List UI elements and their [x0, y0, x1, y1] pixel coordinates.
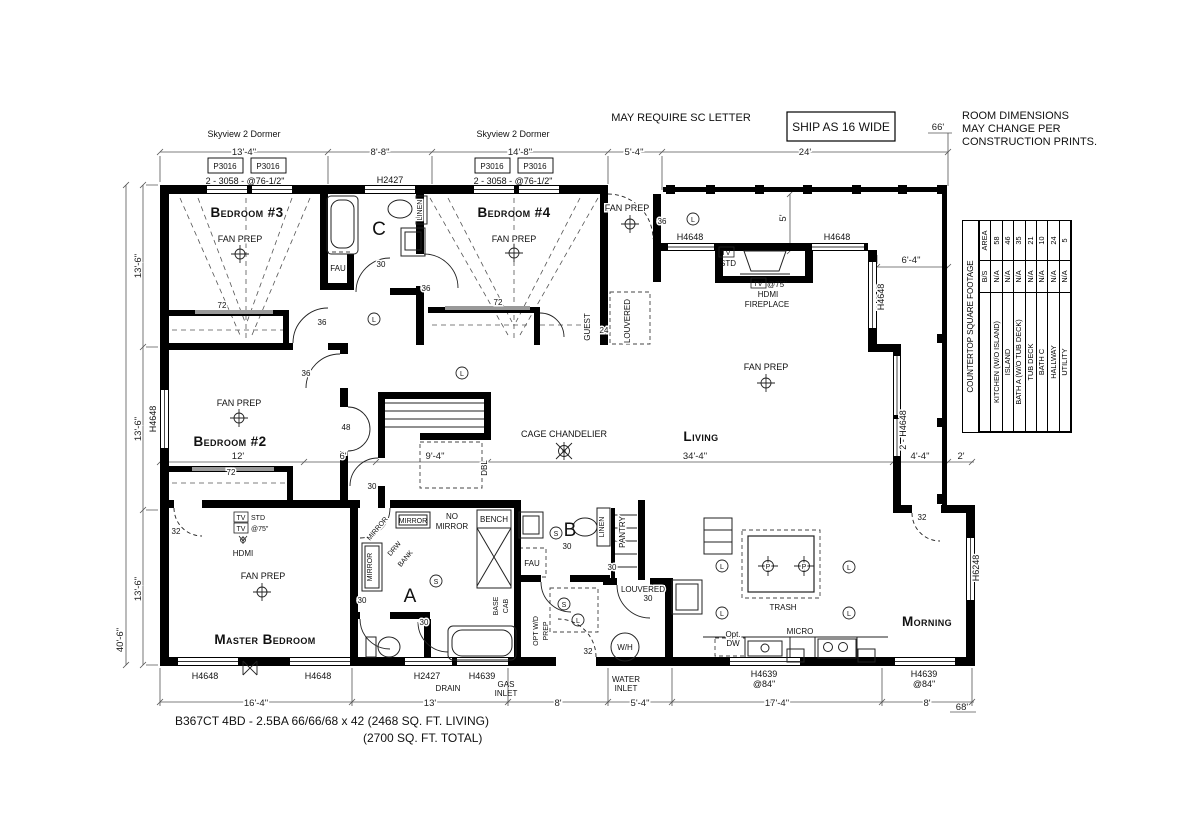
window-label-h4648: H4648	[192, 671, 219, 681]
shelving	[385, 403, 484, 427]
master-bedroom-label: Master Bedroom	[214, 632, 315, 647]
door-size-36: 36	[658, 217, 667, 226]
bedroom4-label: Bedroom #4	[477, 205, 550, 220]
tv-height-label: @75"	[251, 526, 269, 533]
bath-c-label: C	[372, 219, 386, 240]
dashed-boxes	[325, 252, 820, 656]
gas-inlet-label: GAS	[498, 680, 515, 689]
door-size-30: 30	[563, 542, 572, 551]
dim-8: 8'	[923, 698, 930, 709]
dim-4-4: 4'-4"	[911, 451, 930, 462]
windows	[161, 186, 974, 666]
window-label-at84: @84"	[753, 679, 775, 689]
row-label: UTILITY	[1059, 293, 1070, 432]
dim-66: 66'	[932, 122, 945, 133]
row-area: 10	[1036, 221, 1047, 261]
light-letter: L	[720, 611, 724, 618]
fan-prep-label: FAN PREP	[217, 398, 262, 408]
tv-label: TV	[237, 515, 246, 522]
light-letter: L	[720, 564, 724, 571]
opt-wd-label: OPT W/D	[533, 616, 540, 646]
mirror-label: MIRROR	[399, 518, 427, 525]
oven-cabinet	[704, 518, 732, 554]
countertop-table-grid: B/S AREA KITCHEN (W/O ISLAND)N/A58 ISLAN…	[979, 220, 1071, 432]
window-spec-label: 2 - 3058 - @76-1/2"	[474, 176, 553, 186]
p3016-label: P3016	[523, 162, 547, 171]
tv-height-label: @75"	[767, 280, 787, 289]
row-label: BATH C	[1036, 293, 1047, 432]
row-bs: N/A	[1036, 261, 1047, 293]
pantry-label: PANTRY	[618, 515, 627, 547]
door-size-30: 30	[377, 260, 386, 269]
window-label-2-h4648: 2 - H4648	[898, 410, 908, 450]
window-label-h2427: H2427	[377, 175, 404, 185]
bath-b-label: B	[564, 520, 577, 541]
dbl-label: DBL	[480, 460, 489, 476]
fan-prep-label: FAN PREP	[218, 234, 263, 244]
fau-label: FAU	[524, 559, 540, 568]
dbl-closet	[420, 442, 482, 488]
window-label-h4639: H4639	[751, 669, 778, 679]
fan-prep-label: FAN PREP	[241, 571, 286, 581]
door-size-30: 30	[368, 482, 377, 491]
no-mirror-label: NO	[446, 512, 458, 521]
hdmi-label: HDMI	[758, 290, 778, 299]
fan-prep-label: FAN PREP	[492, 234, 537, 244]
switch-letter: S	[434, 579, 439, 586]
dim-5-4: 5'-4"	[625, 147, 644, 158]
dim-6: 6'	[339, 451, 346, 462]
island-outline	[742, 530, 820, 598]
mirror-label: MIRROR	[366, 516, 390, 542]
table-header-row: B/S AREA	[980, 221, 991, 432]
no-mirror-label: MIRROR	[436, 522, 469, 531]
water-inlet-label: INLET	[615, 684, 638, 693]
row-label: TUB DECK	[1025, 293, 1036, 432]
row-label: ISLAND	[1002, 293, 1013, 432]
switch-letter: S	[554, 531, 559, 538]
door-size-30: 30	[420, 618, 429, 627]
fan-prep-symbol	[230, 409, 248, 427]
walls	[160, 185, 975, 666]
dim-24: 24'	[799, 147, 812, 158]
kitchen-sink	[748, 641, 782, 656]
trash-label: TRASH	[769, 603, 796, 612]
water-heater-label: W/H	[617, 643, 633, 652]
fan-prep-label: FAN PREP	[744, 362, 789, 372]
room-dims-note-line2: MAY CHANGE PER	[962, 123, 1061, 135]
row-area: 35	[1014, 221, 1025, 261]
tv-label: TV	[237, 526, 246, 533]
bedroom3-label: Bedroom #3	[210, 205, 283, 220]
window-spec-label: 2 - 3058 - @76-1/2"	[206, 176, 285, 186]
switch-letter: S	[562, 602, 567, 609]
base-cab-label: BASE	[493, 596, 500, 615]
row-bs: N/A	[1048, 261, 1059, 293]
table-row: BATH CN/A10	[1036, 221, 1047, 432]
bath-a-label: A	[404, 586, 417, 607]
dim-34-4: 34'-4"	[683, 451, 707, 462]
opt-wd-label: PREP	[543, 621, 550, 640]
table-row: KITCHEN (W/O ISLAND)N/A58	[991, 221, 1002, 432]
door-size-24: 24	[600, 326, 609, 335]
dim-14-8: 14'-8"	[508, 147, 532, 158]
toilet-c	[388, 200, 412, 218]
window-label-h4639: H4639	[911, 669, 938, 679]
dim-9-4: 9'-4"	[426, 451, 445, 462]
washer-dryer-prep	[550, 588, 598, 632]
sc-letter-note: MAY REQUIRE SC LETTER	[611, 112, 751, 124]
fan-prep-symbol	[253, 583, 271, 601]
dim-8-8: 8'-8"	[371, 147, 390, 158]
row-bs: N/A	[1025, 261, 1036, 293]
door-size-30: 30	[358, 596, 367, 605]
tv-label: TV	[754, 281, 763, 288]
window-label-h2427: H2427	[414, 671, 441, 681]
window-label-at84: @84"	[913, 679, 935, 689]
tv-std-label: STD	[251, 515, 265, 522]
pendant-letter: P	[802, 564, 807, 571]
table-col-bs: B/S	[980, 261, 991, 293]
door-size-36: 36	[302, 369, 311, 378]
light-letter: L	[372, 317, 376, 324]
window-label-h4648: H4648	[677, 232, 704, 242]
room-dims-note-line3: CONSTRUCTION PRINTS.	[962, 136, 1097, 148]
louvered-label: LOUVERED	[621, 585, 665, 594]
micro-label: MICRO	[787, 627, 814, 636]
p3016-label: P3016	[256, 162, 280, 171]
tv-label: TV	[722, 250, 731, 257]
table-row: HALLWAYN/A24	[1048, 221, 1059, 432]
skyview-dormer-label: Skyview 2 Dormer	[476, 129, 549, 139]
fan-prep-symbol	[757, 374, 775, 392]
door-size-32: 32	[584, 647, 593, 656]
bench-label: BENCH	[480, 515, 508, 524]
row-label: BATH A (W/O TUB DECK)	[1014, 293, 1025, 432]
light-letter: L	[847, 611, 851, 618]
door-size-30: 30	[644, 594, 653, 603]
opt-dw-label: DW	[726, 639, 740, 648]
dim-68: 68'	[956, 702, 969, 713]
light-letter: L	[576, 618, 580, 625]
fau-label: FAU	[330, 264, 346, 273]
louvered-label: LOUVERED	[623, 299, 632, 343]
window-label-h4648: H4648	[824, 232, 851, 242]
dim-13-6: 13'-6"	[133, 417, 144, 441]
row-area: 58	[991, 221, 1002, 261]
dim-17-4: 17'-4"	[765, 698, 789, 709]
door-size-36: 36	[318, 318, 327, 327]
door-size-32: 32	[172, 527, 181, 536]
row-bs: N/A	[1059, 261, 1070, 293]
dim-40-6: 40'-6"	[115, 628, 126, 652]
p3016-label: P3016	[480, 162, 504, 171]
drain-label: DRAIN	[436, 684, 461, 693]
morning-label: Morning	[902, 614, 952, 629]
tv-std-label: STD	[720, 259, 736, 268]
table-corner-cell	[980, 293, 991, 432]
skyview-dormer-label: Skyview 2 Dormer	[207, 129, 280, 139]
row-bs: N/A	[991, 261, 1002, 293]
living-label: Living	[683, 429, 718, 444]
row-area: 46	[1002, 221, 1013, 261]
table-row: ISLANDN/A46	[1002, 221, 1013, 432]
row-label: HALLWAY	[1048, 293, 1059, 432]
ship-wide-label: SHIP AS 16 WIDE	[792, 120, 890, 134]
row-bs: N/A	[1014, 261, 1025, 293]
row-area: 24	[1048, 221, 1059, 261]
mirror-label: MIRROR	[367, 553, 374, 581]
fan-prep-label: FAN PREP	[605, 203, 650, 213]
window-label-h4639: H4639	[469, 671, 496, 681]
base-cab-label: CAB	[503, 598, 510, 613]
drw-bank-label: DRW	[387, 540, 403, 558]
door-size-30: 30	[608, 563, 617, 572]
dim-13-6: 13'-6"	[133, 577, 144, 601]
dim-8: 8'	[554, 698, 561, 709]
toilet-b	[573, 518, 597, 536]
table-row: UTILITYN/A5	[1059, 221, 1070, 432]
door-size-32: 32	[918, 513, 927, 522]
water-inlet-label: WATER	[612, 675, 640, 684]
text-labels: MAY REQUIRE SC LETTER SHIP AS 16 WIDE RO…	[115, 110, 1097, 745]
row-area: 21	[1025, 221, 1036, 261]
table-row: BATH A (W/O TUB DECK)N/A35	[1014, 221, 1025, 432]
toilet-a	[366, 637, 376, 657]
dim-6-4: 6'-4"	[902, 255, 921, 266]
cage-chandelier-label: CAGE CHANDELIER	[521, 429, 608, 439]
table-col-area: AREA	[980, 221, 991, 261]
fan-prep-symbol	[621, 215, 639, 233]
guest-closet-label: GUEST	[583, 313, 592, 341]
countertop-table: COUNTERTOP SQUARE FOOTAGE B/S AREA KITCH…	[962, 220, 1072, 433]
dim-5: 5'	[778, 214, 789, 221]
drw-bank-label: BANK	[397, 549, 415, 568]
plan-title-line1: B367CT 4BD - 2.5BA 66/66/68 x 42 (2468 S…	[175, 714, 489, 728]
window-label-h4648: H4648	[876, 284, 886, 311]
dim-2: 2'	[957, 451, 964, 462]
chandelier-symbol	[556, 442, 572, 460]
fireplace-tv	[740, 251, 790, 274]
closet-size-72: 72	[218, 301, 227, 310]
row-area: 5	[1059, 221, 1070, 261]
light-letter: L	[460, 371, 464, 378]
dim-12: 12'	[232, 451, 245, 462]
dim-16-4: 16'-4"	[244, 698, 268, 709]
dim-13: 13'	[424, 698, 437, 709]
p3016-label: P3016	[213, 162, 237, 171]
row-bs: N/A	[1002, 261, 1013, 293]
window-label-h4648: H4648	[305, 671, 332, 681]
opt-dw-label: Opt.	[725, 630, 740, 639]
opening-size-48: 48	[342, 423, 351, 432]
linen-label: LINEN	[599, 517, 606, 538]
light-letter: L	[847, 565, 851, 572]
plan-title-line2: (2700 SQ. FT. TOTAL)	[363, 731, 482, 745]
dim-5-4: 5'-4"	[631, 698, 650, 709]
door-size-36: 36	[422, 284, 431, 293]
hdmi-label: HDMI	[233, 549, 253, 558]
light-letter: L	[691, 217, 695, 224]
closet-size-72: 72	[227, 468, 236, 477]
countertop-table-title: COUNTERTOP SQUARE FOOTAGE	[963, 221, 979, 432]
dim-13-4: 13'-4"	[232, 147, 256, 158]
linen-label: LINEN	[417, 200, 424, 221]
bedroom2-label: Bedroom #2	[193, 434, 266, 449]
pendant-letter: P	[766, 564, 771, 571]
window-label-h6248: H6248	[971, 555, 981, 582]
fan-prep-symbol	[505, 244, 523, 262]
gas-inlet-label: INLET	[495, 689, 518, 698]
table-row: TUB DECKN/A21	[1025, 221, 1036, 432]
window-label-h4648: H4648	[148, 406, 158, 433]
dim-13-6: 13'-6"	[133, 254, 144, 278]
row-label: KITCHEN (W/O ISLAND)	[991, 293, 1002, 432]
floorplan-page: MAY REQUIRE SC LETTER SHIP AS 16 WIDE RO…	[0, 0, 1200, 818]
closet-size-72: 72	[494, 298, 503, 307]
room-dims-note-line1: ROOM DIMENSIONS	[962, 110, 1069, 122]
fireplace-label: FIREPLACE	[745, 300, 789, 309]
